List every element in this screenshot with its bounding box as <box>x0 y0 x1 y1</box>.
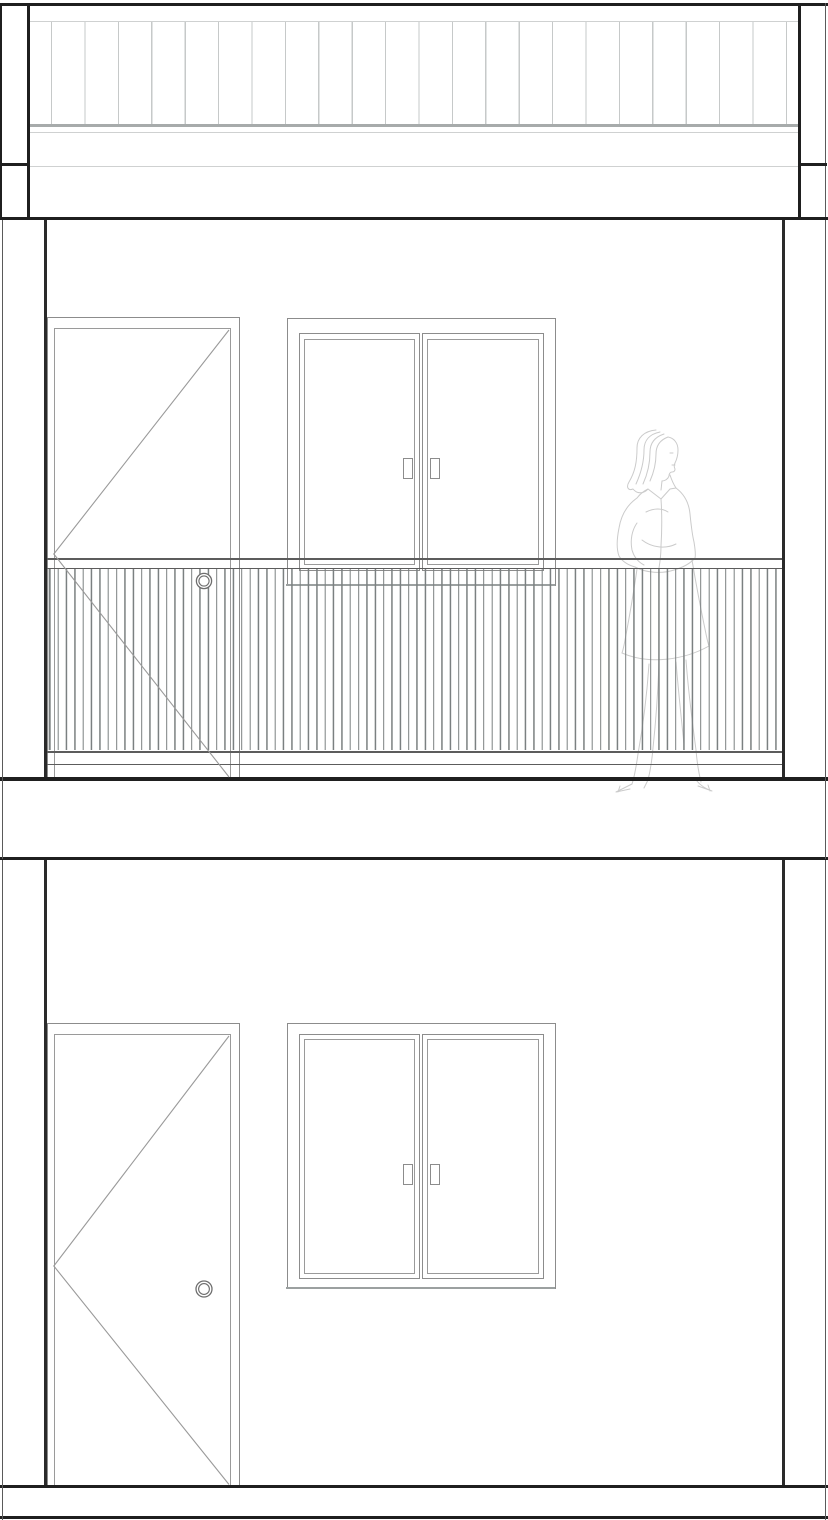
lower-door-leaf <box>54 1034 232 1487</box>
lower-right-outer-edge <box>825 860 827 1485</box>
lower-window-left-glass <box>304 1039 415 1274</box>
railing-bottom-rail-line-2 <box>47 764 783 765</box>
roof-left-post-divider <box>0 163 30 166</box>
ground-left-edge <box>2 1485 3 1520</box>
upper-window-right-glass <box>427 339 540 566</box>
roof-bottom-edge <box>0 217 828 221</box>
ground-right-edge <box>825 1485 827 1520</box>
roof-left-post-outer-edge <box>0 3 2 220</box>
lower-window-right-glass <box>427 1039 540 1274</box>
roof-fascia-line-1 <box>30 132 799 133</box>
upper-window-left-glass <box>304 339 415 566</box>
roof-top-edge <box>0 3 828 6</box>
elevation-drawing <box>0 0 828 1520</box>
railing-balusters <box>47 569 783 750</box>
lower-window-left-handle <box>403 1164 413 1185</box>
ground-top-line <box>0 1485 828 1489</box>
slab-top-line <box>0 777 828 781</box>
roof-fascia-line-2 <box>30 166 799 167</box>
upper-left-outer-edge <box>2 220 3 778</box>
lower-right-wall <box>782 860 785 1485</box>
railing-top-rail-line-1 <box>47 558 783 559</box>
ground-bottom-line <box>0 1516 828 1520</box>
upper-right-wall <box>782 220 785 778</box>
upper-right-outer-edge <box>825 220 827 778</box>
railing-bottom-rail-line-1 <box>47 751 783 752</box>
roof-slats <box>30 21 799 125</box>
slab-right-edge <box>825 777 827 859</box>
upper-window-right-handle <box>430 458 440 479</box>
roof-slat-bottom-band <box>30 124 799 127</box>
lower-window-sill <box>286 1287 555 1289</box>
slab-left-edge <box>2 777 3 859</box>
upper-window-left-handle <box>403 458 413 479</box>
roof-right-post-inner-edge <box>798 3 801 220</box>
slab-bottom-line <box>0 857 828 860</box>
roof-right-post-divider <box>798 163 827 166</box>
lower-left-outer-edge <box>2 860 3 1485</box>
roof-right-post-outer-edge <box>825 3 827 220</box>
lower-window-right-handle <box>430 1164 440 1185</box>
